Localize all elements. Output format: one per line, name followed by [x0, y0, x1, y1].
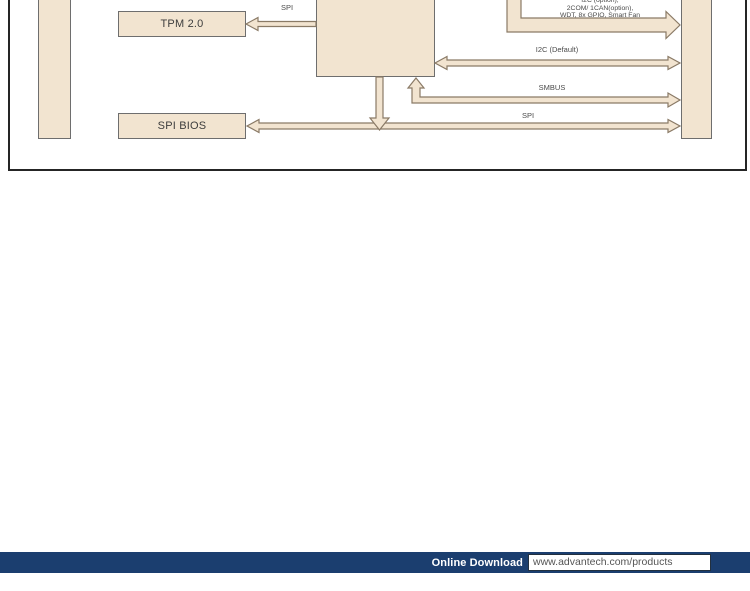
bus-label-option-group: I2C (option), 2COM/ 1CAN(option), WDT, 8…	[520, 0, 680, 20]
datasheet-page: TPM 2.0 SPI BIOS SPI I2C (option), 2COM/…	[0, 0, 750, 591]
left-bus-block	[38, 0, 71, 139]
bus-label-spi-tpm: SPI	[267, 4, 307, 12]
bus-label-option-line3: WDT, 8x GPIO, Smart Fan	[520, 12, 680, 20]
online-download-label: Online Download	[432, 557, 523, 569]
bus-label-i2c-default: I2C (Default)	[497, 46, 617, 54]
spi-bios-block: SPI BIOS	[118, 113, 246, 139]
right-bus-block	[681, 0, 712, 139]
tpm-block-label: TPM 2.0	[161, 18, 204, 30]
footer-bar: Online Download www.advantech.com/produc…	[0, 552, 750, 573]
chipset-block	[316, 0, 435, 77]
spi-bios-block-label: SPI BIOS	[158, 120, 207, 132]
bus-label-spi-bios: SPI	[468, 112, 588, 120]
tpm-block: TPM 2.0	[118, 11, 246, 37]
bus-label-option-line2: 2COM/ 1CAN(option),	[520, 5, 680, 13]
bus-label-smbus: SMBUS	[492, 84, 612, 92]
download-url-box[interactable]: www.advantech.com/products	[528, 554, 711, 571]
